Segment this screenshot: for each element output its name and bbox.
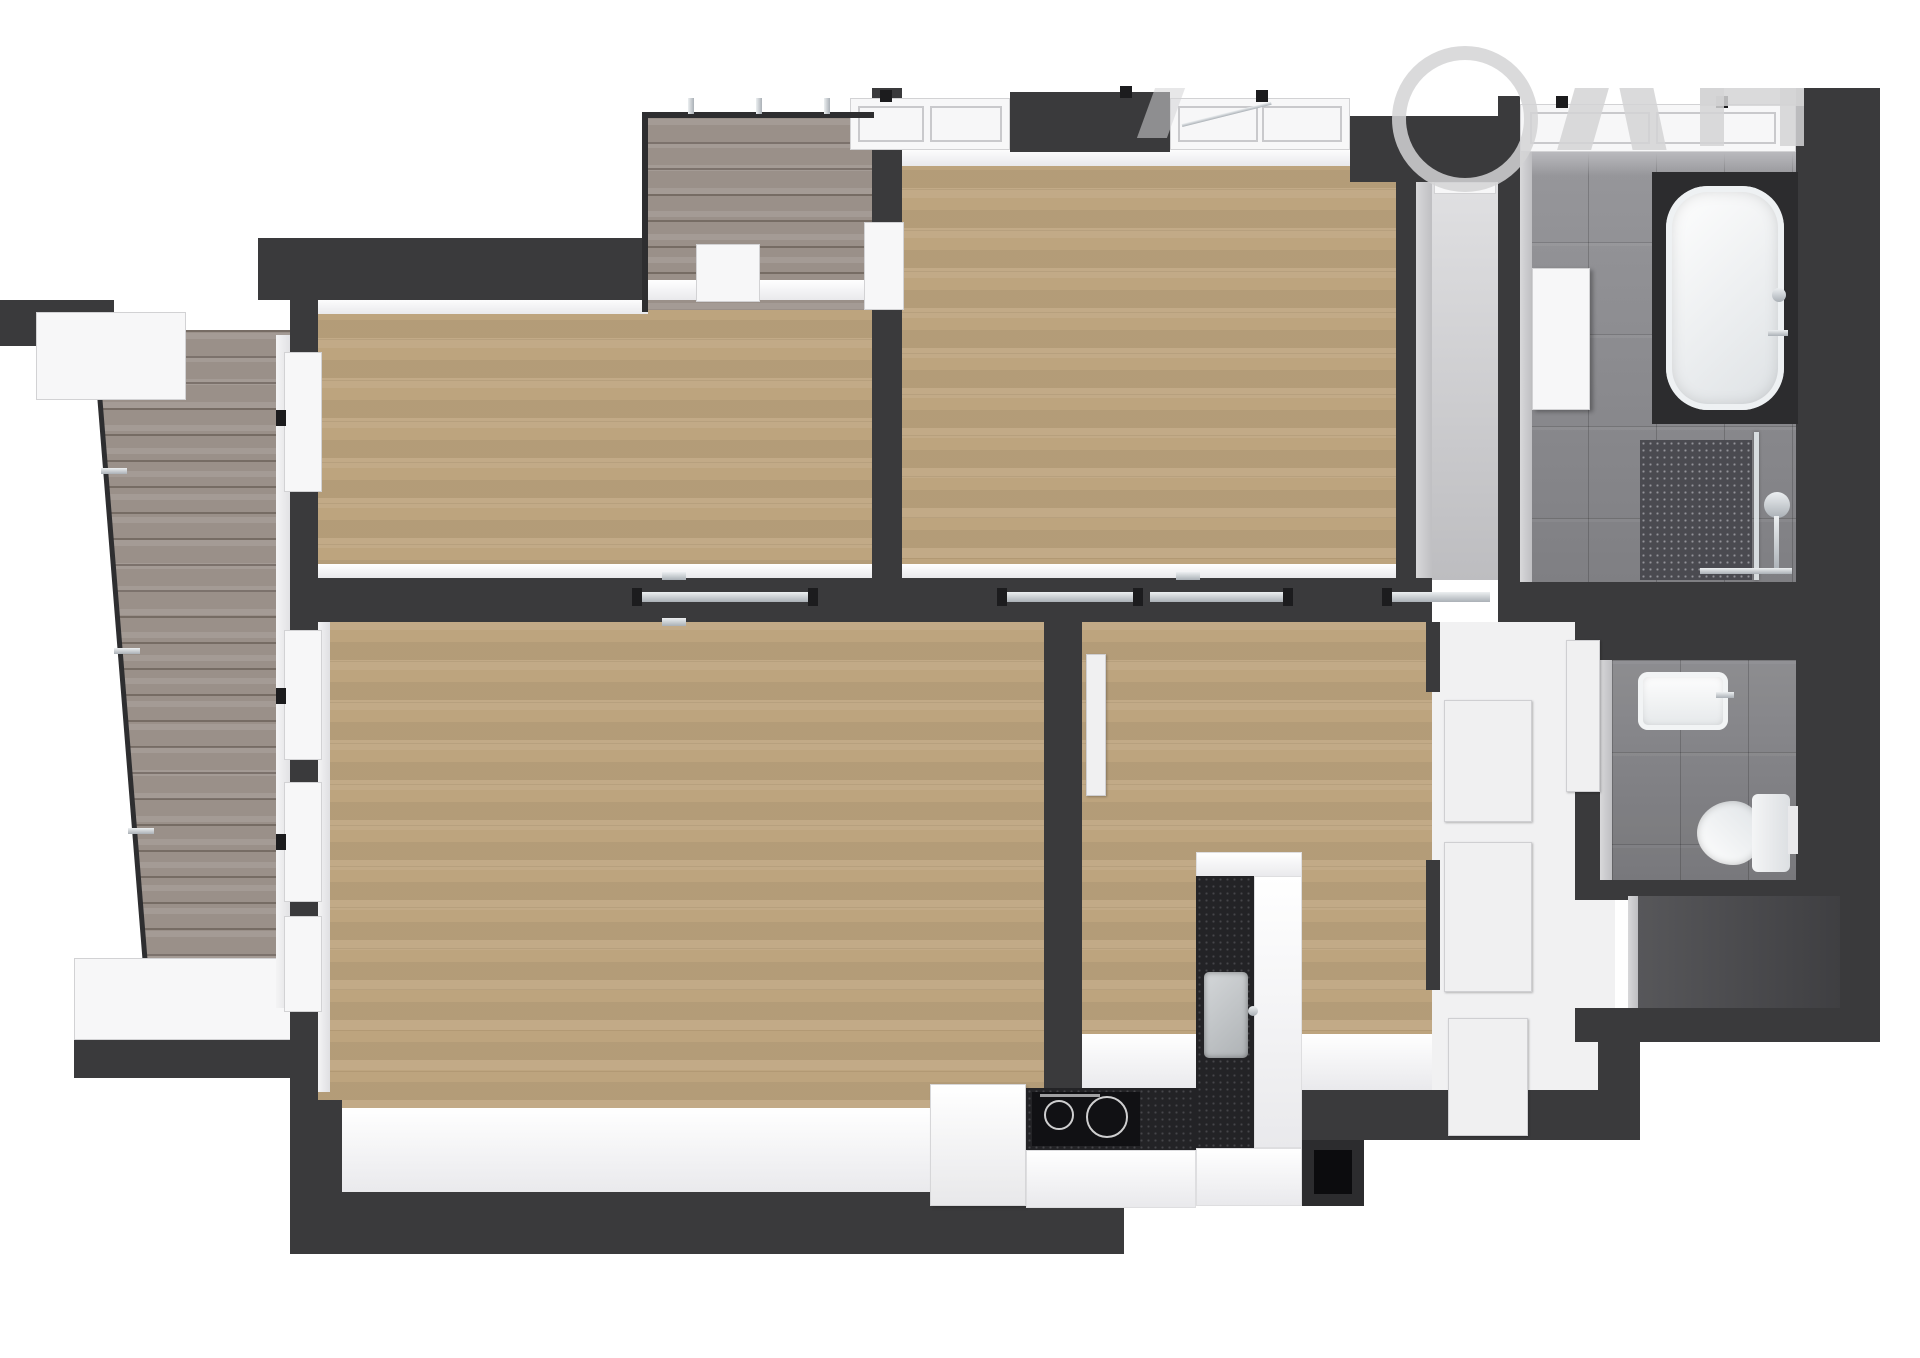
bathroom-wall-cabinet <box>1532 268 1590 410</box>
watermark-stroke-fragment <box>1700 88 1724 146</box>
kitchen-sink <box>1204 972 1248 1058</box>
wall-bedroomA-east <box>872 88 902 580</box>
bedroom-top-center-floor <box>900 148 1396 580</box>
door-track-end <box>1382 588 1392 606</box>
wall-step-right <box>1598 1040 1640 1140</box>
door-track-end <box>1283 588 1293 606</box>
balcony-top-railing-side <box>642 112 648 312</box>
kitchen-counter-front-bottom <box>1196 1148 1302 1206</box>
balcony-left-bench-base <box>74 1040 306 1078</box>
bathtub-mixer-icon <box>1768 330 1788 336</box>
storage-niche-floor <box>1638 896 1840 1008</box>
sink-faucet-icon <box>1248 1006 1258 1016</box>
hallway-door-panel <box>1444 700 1532 822</box>
window-clip-icon <box>276 410 286 426</box>
toilet-west-face <box>1600 660 1612 900</box>
window-clip-icon <box>1556 96 1568 108</box>
door-handle-bracket <box>662 618 686 626</box>
railing-bracket-icon <box>101 468 127 474</box>
balcony-door-living <box>284 916 322 1012</box>
door-handle-bracket <box>662 572 686 580</box>
door-track <box>1150 592 1285 602</box>
wall-hallway-west-stub-top <box>1426 622 1440 692</box>
balcony-left-planter-bench <box>36 312 186 400</box>
entry-corridor-floor <box>1432 150 1498 580</box>
window-sash <box>1262 106 1342 142</box>
kitchen-counter-front-face <box>1026 1150 1196 1208</box>
sink-faucet-icon <box>1716 692 1734 698</box>
window-sash <box>930 106 1002 142</box>
window-living-west-1 <box>284 630 322 760</box>
balcony-top-south-face <box>648 280 872 300</box>
door-track <box>640 592 810 602</box>
wall-toilet-north <box>1612 622 1796 660</box>
vent-shaft-opening <box>1314 1150 1352 1194</box>
wall-bedroomB-east <box>1396 148 1416 580</box>
wall-bathroom-south <box>1498 582 1798 622</box>
cooktop-controls-icon <box>1040 1094 1100 1097</box>
hallway-door-panel <box>1448 1018 1528 1136</box>
window-clip-icon <box>880 90 892 102</box>
window-clip-icon <box>1120 86 1132 98</box>
shower-mixer-icon <box>1764 492 1790 518</box>
window-bedroomA-west <box>284 352 322 492</box>
niche-west-face <box>1628 896 1638 1008</box>
wall-bathroom-west <box>1498 150 1520 582</box>
bedroom-top-center-west-wall-face <box>1416 150 1432 580</box>
window-clip-icon <box>276 688 286 704</box>
wall-left-elbow <box>290 1100 342 1194</box>
watermark-stroke-fragment <box>1780 88 1804 146</box>
kitchen-tall-cabinet <box>930 1084 1026 1206</box>
floor-plan-canvas <box>0 0 1920 1358</box>
balcony-left-bench <box>74 958 306 1040</box>
shower-glass-panel <box>1754 432 1759 580</box>
door-handle-bracket <box>1176 572 1200 580</box>
window-living-west-2 <box>284 782 322 902</box>
bedroom-top-left-north-face <box>318 298 648 314</box>
door-track-end <box>632 588 642 606</box>
bedroomC-door-leaf <box>1086 654 1106 796</box>
shower-tray <box>1640 440 1752 580</box>
bathroom-west-face <box>1520 152 1532 582</box>
shower-riser-icon <box>1774 516 1779 572</box>
door-track <box>1390 592 1490 602</box>
hallway-door-panel <box>1444 842 1532 992</box>
kitchen-cabinet-side-face <box>1254 876 1302 1148</box>
wall-niche-bottom <box>1575 1008 1880 1042</box>
cooktop-burner-icon <box>1086 1096 1128 1138</box>
flush-plate-icon <box>1788 806 1798 854</box>
door-track-end <box>808 588 818 606</box>
bathtub-faucet-icon <box>1772 288 1786 302</box>
door-track-end <box>1133 588 1143 606</box>
wall-hallway-west-stub-mid <box>1426 860 1440 990</box>
door-track <box>1005 592 1135 602</box>
window-clip-icon <box>276 834 286 850</box>
watermark-letter-O-fragment <box>1392 46 1538 192</box>
window-clip-icon <box>1256 90 1268 102</box>
railing-post-icon <box>756 98 762 114</box>
door-track-end <box>997 588 1007 606</box>
kitchen-counter-end-cap <box>1196 852 1302 878</box>
bedroom-top-left-floor <box>318 298 878 580</box>
railing-bracket-icon <box>128 828 154 834</box>
railing-post-icon <box>824 98 830 114</box>
railing-post-icon <box>688 98 694 114</box>
toilet-tank <box>1752 794 1790 872</box>
cooktop-burner-icon <box>1044 1100 1074 1130</box>
balcony-top-door <box>864 222 904 310</box>
railing-bracket-icon <box>114 648 140 654</box>
hand-sink <box>1638 672 1728 730</box>
bedroomA-balcony-door <box>696 244 760 302</box>
bathtub <box>1666 186 1784 410</box>
shower-bar-icon <box>1700 568 1792 574</box>
toilet-door-leaf <box>1566 640 1600 792</box>
